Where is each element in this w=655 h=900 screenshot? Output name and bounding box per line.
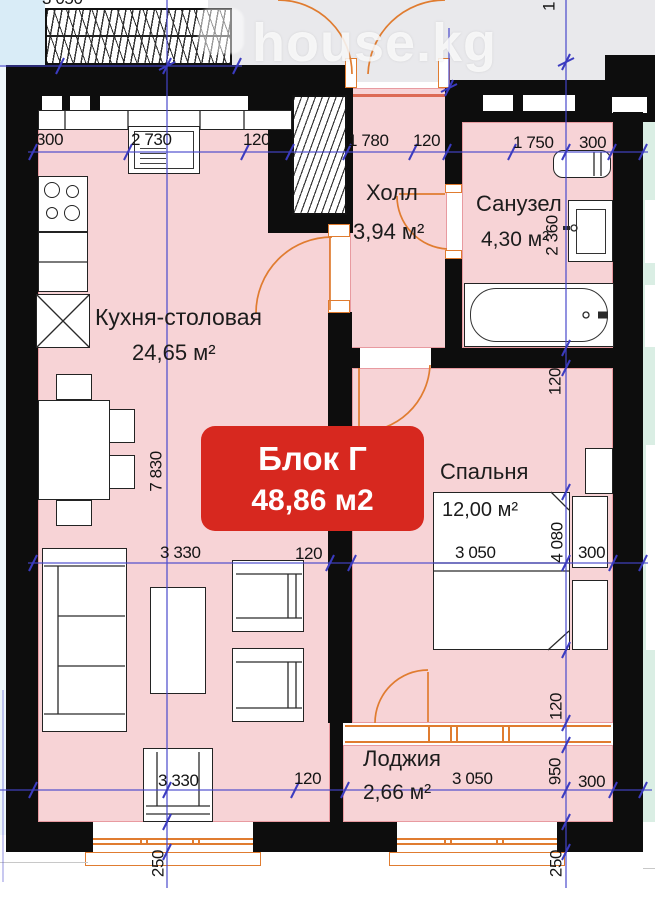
window-sill-right xyxy=(389,852,565,866)
block-badge: Блок Г 48,86 м2 xyxy=(201,426,424,531)
sink-drainer xyxy=(140,148,166,166)
dim-120-bottom: 120 xyxy=(294,770,321,787)
wall-slot xyxy=(100,96,248,110)
dim-300-bottom: 300 xyxy=(578,773,605,790)
wall-loggia-left xyxy=(330,723,343,822)
wall-slot xyxy=(483,95,513,111)
window-tick xyxy=(450,838,452,844)
window-tick xyxy=(140,838,142,844)
wall-right xyxy=(613,112,643,822)
room-hall-floor xyxy=(350,88,447,348)
dim-250-left: 250 xyxy=(150,832,167,896)
dim-950: 950 xyxy=(547,740,564,804)
floor-plan: 3 050 300 2 730 120 1 780 120 1 750 300 … xyxy=(0,0,655,900)
window-bottom-left xyxy=(93,822,253,852)
stove-burner xyxy=(66,185,79,198)
kitchen-label: Кухня-столовая xyxy=(95,306,262,329)
hall-label: Холл xyxy=(366,182,418,204)
window-tick xyxy=(496,838,498,844)
dim-1-right: 1 xyxy=(541,0,558,39)
loggia-window-tick xyxy=(456,725,458,742)
window-tick xyxy=(198,838,200,844)
dim-250-right: 250 xyxy=(548,832,565,896)
neighbor-fixture xyxy=(646,445,655,650)
dim-2730: 2 730 xyxy=(131,131,172,148)
bathtub-inner xyxy=(470,288,608,342)
window-sill-left xyxy=(85,852,261,866)
loggia-window-frame xyxy=(345,725,611,727)
toilet-symbol xyxy=(553,150,611,178)
wall-hall-right-a xyxy=(445,122,462,192)
stove-burner xyxy=(46,207,58,219)
window-frame xyxy=(93,843,253,845)
bedroom-label: Спальня xyxy=(440,461,528,483)
coffee-table xyxy=(150,587,206,694)
window-frame xyxy=(397,838,557,840)
armchair xyxy=(232,648,304,722)
dim-3330-bottom: 3 330 xyxy=(158,772,199,789)
entry-threshold xyxy=(352,94,445,97)
dim-4080: 4 080 xyxy=(549,511,566,575)
washbasin-inner xyxy=(576,209,606,254)
window-tick xyxy=(444,838,446,844)
sofa xyxy=(42,548,127,732)
dim-300-mid: 300 xyxy=(578,544,605,561)
window-tick xyxy=(146,838,148,844)
wall-left xyxy=(6,112,38,822)
dim-300-a: 300 xyxy=(36,131,63,148)
loggia-window-tick xyxy=(502,725,504,742)
window-tick xyxy=(502,838,504,844)
dim-3050-topleft: 3 050 xyxy=(42,0,83,7)
dim-120-right-b: 120 xyxy=(548,675,565,739)
kitchen-area: 24,65 м² xyxy=(132,342,216,364)
wall-bottom-left xyxy=(6,822,93,852)
wall-hall-right-b xyxy=(445,253,462,348)
dining-chair xyxy=(109,455,135,489)
bathroom-area: 4,30 м² xyxy=(481,229,549,250)
wall-bottom-right xyxy=(557,822,643,852)
dining-chair xyxy=(56,374,92,400)
fridge-symbol xyxy=(36,294,90,348)
dim-3050-loggia: 3 050 xyxy=(452,770,493,787)
balcony-outline-below xyxy=(0,862,88,863)
badge-title: Блок Г xyxy=(201,440,424,478)
stove-burner xyxy=(64,205,80,221)
watermark: house.kg xyxy=(252,12,497,74)
armchair xyxy=(232,560,304,632)
dim-7830: 7 830 xyxy=(148,440,165,504)
wall-nub-top-right xyxy=(605,55,655,82)
watermark-logo xyxy=(198,8,244,54)
wall-shaft-right xyxy=(347,95,353,218)
window-bottom-right xyxy=(397,822,557,852)
dim-300-b: 300 xyxy=(579,134,606,151)
loggia-window-frame xyxy=(345,741,611,743)
window-frame xyxy=(397,843,557,845)
dim-3050-bed: 3 050 xyxy=(455,544,496,561)
dim-120-right-a: 120 xyxy=(547,350,564,414)
wall-hall-bottom-a xyxy=(350,348,360,368)
badge-area: 48,86 м2 xyxy=(201,484,424,518)
exterior-corner-topleft xyxy=(0,0,45,67)
kitchen-door-jamb xyxy=(328,300,350,313)
wall-bath-bottom xyxy=(447,348,613,368)
dim-3330-mid: 3 330 xyxy=(160,544,201,561)
dim-1750: 1 750 xyxy=(513,134,554,151)
wall-slot xyxy=(42,96,62,110)
wall-slot xyxy=(70,96,90,110)
bath-door-jamb xyxy=(445,250,462,259)
wall-slot xyxy=(612,97,647,113)
dining-chair xyxy=(109,409,135,443)
bedroom-area: 12,00 м² xyxy=(442,500,518,520)
hall-area: 3,94 м² xyxy=(353,221,424,243)
kitchen-cabinet xyxy=(38,232,88,292)
dining-chair xyxy=(56,500,92,526)
loggia-label: Лоджия xyxy=(363,748,441,770)
loggia-window-tick xyxy=(450,725,452,742)
dim-1780: 1 780 xyxy=(348,132,389,149)
dining-table xyxy=(38,400,110,500)
neighbor-fixture xyxy=(645,200,655,263)
loggia-window-mullion xyxy=(428,725,430,742)
neighbor-fixture xyxy=(645,285,655,347)
dresser xyxy=(585,448,613,494)
wall-slot xyxy=(523,95,575,111)
loggia-area: 2,66 м² xyxy=(363,782,431,803)
window-frame xyxy=(93,838,253,840)
bath-door-jamb xyxy=(445,184,462,193)
wall-bottom-mid xyxy=(253,822,397,852)
bathroom-label: Санузел xyxy=(476,193,562,215)
wall-hall-bottom-b xyxy=(431,348,447,368)
dim-120-a: 120 xyxy=(243,131,270,148)
kitchen-door-jamb xyxy=(328,224,350,237)
balcony-outline-below xyxy=(643,868,655,869)
window-tick xyxy=(192,838,194,844)
stove-burner xyxy=(44,182,60,198)
nightstand xyxy=(572,580,608,650)
vent-shaft-hatch xyxy=(292,95,347,215)
dim-120-b: 120 xyxy=(413,132,440,149)
dim-120-mid: 120 xyxy=(295,545,322,562)
loggia-window-tick xyxy=(508,725,510,742)
